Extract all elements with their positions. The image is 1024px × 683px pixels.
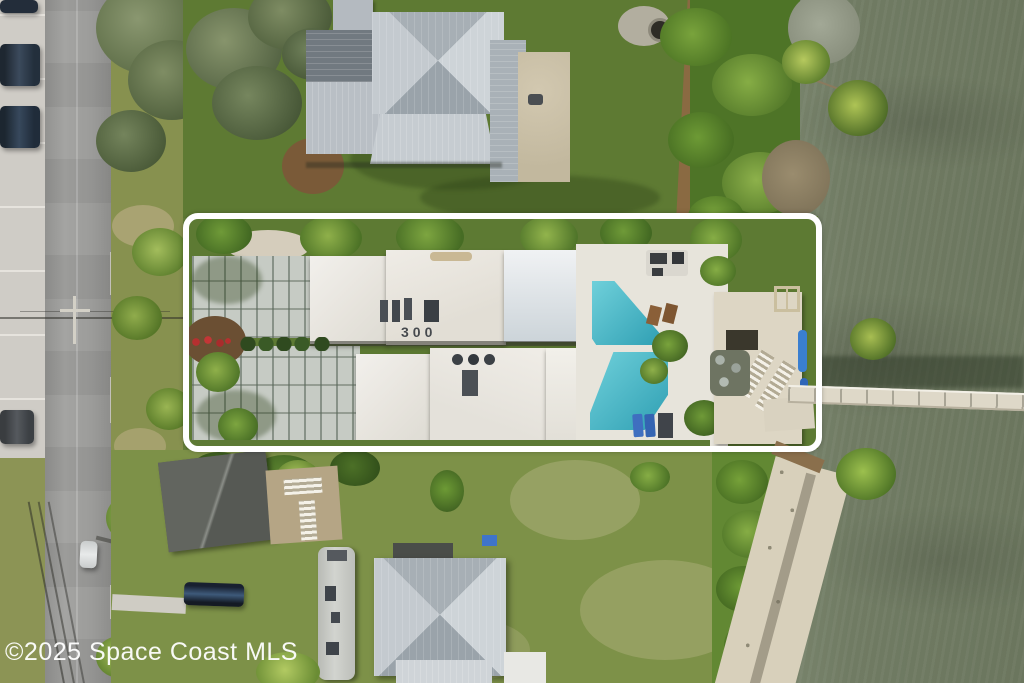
pool-equipment-strip	[393, 543, 453, 558]
roof-wing-left-lower	[306, 82, 382, 154]
rv-vent	[326, 642, 339, 655]
shrub	[430, 470, 464, 512]
blue-tarp	[482, 535, 497, 546]
car-on-road	[79, 541, 97, 569]
palm-tree	[132, 228, 188, 276]
parked-car	[0, 44, 40, 86]
dock-shadow	[798, 356, 1024, 388]
shore-rubble	[762, 140, 830, 216]
gravel-patio	[518, 52, 570, 182]
roof-eave-shadow	[306, 162, 502, 168]
palm-tree	[828, 80, 888, 136]
mls-watermark: ©2025 Space Coast MLS	[5, 638, 298, 667]
roof-white-strip	[504, 652, 546, 683]
shingle-roof	[158, 450, 276, 552]
parked-car	[0, 0, 38, 13]
worn-grass	[510, 460, 640, 540]
palm-tree	[782, 40, 830, 84]
shrub	[660, 8, 732, 66]
rv-vent	[331, 612, 340, 623]
parked-car	[0, 106, 40, 148]
deck-stairs	[299, 499, 318, 540]
roof-wing-bottom	[370, 114, 496, 164]
roof-hip-center	[374, 558, 506, 676]
tree	[96, 110, 166, 172]
shrub	[668, 112, 734, 168]
grill	[528, 94, 543, 105]
shrub	[712, 54, 792, 116]
parked-car-dark	[184, 582, 245, 607]
palm-tree	[850, 318, 896, 360]
roof-extension	[396, 660, 492, 683]
tree	[212, 66, 302, 140]
aerial-photo: 300 ©2025 Space Coast MLS	[0, 0, 1024, 683]
parked-car	[0, 410, 34, 444]
road-seam	[76, 0, 78, 683]
rv-roof-box	[327, 550, 347, 561]
shrub	[716, 460, 768, 504]
shrub	[630, 462, 670, 492]
palm-tree	[836, 448, 896, 500]
roof-hip-center	[372, 12, 504, 114]
utility-pole	[73, 296, 76, 344]
utility-pole-crossarm	[60, 309, 90, 312]
deck-stairs	[283, 477, 322, 496]
rv-vent	[325, 586, 336, 601]
palm-tree	[112, 296, 162, 340]
property-boundary-outline	[183, 213, 822, 452]
